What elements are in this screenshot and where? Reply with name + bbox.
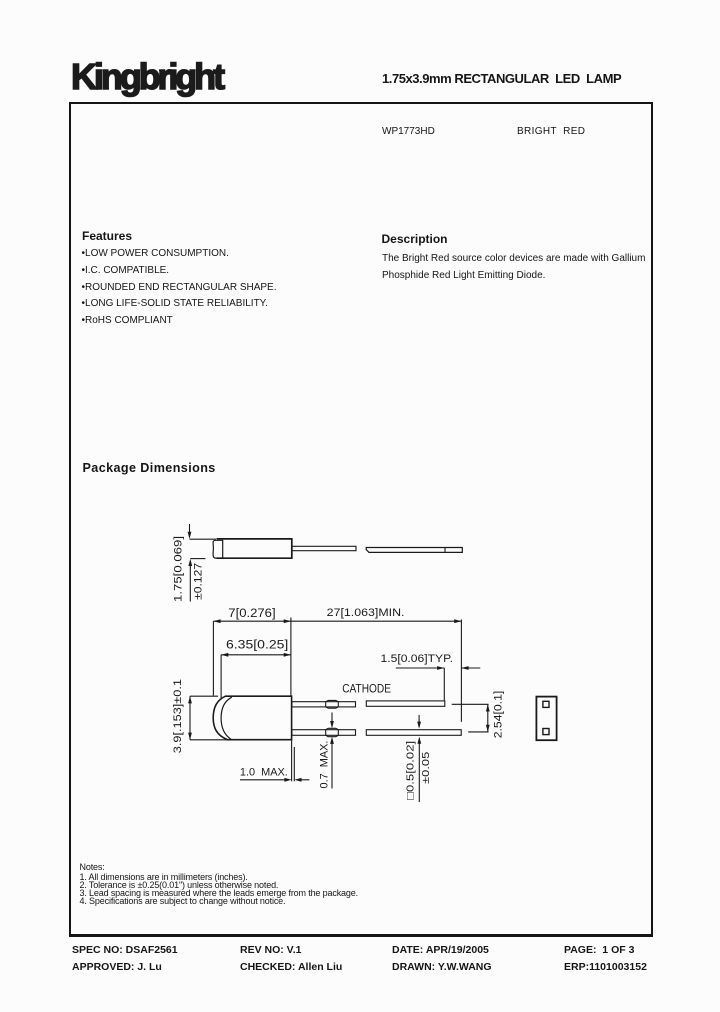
svg-text:7[0.276]: 7[0.276] bbox=[228, 608, 275, 620]
svg-text:0.7 MAX.: 0.7 MAX. bbox=[319, 741, 331, 789]
svg-text:CATHODE: CATHODE bbox=[342, 684, 391, 696]
svg-text:6.35[0.25]: 6.35[0.25] bbox=[226, 640, 288, 652]
svg-text:1.5[0.06]TYP.: 1.5[0.06]TYP. bbox=[381, 653, 454, 665]
svg-text:27[1.063]MIN.: 27[1.063]MIN. bbox=[327, 607, 405, 619]
svg-text:2.54[0.1]: 2.54[0.1] bbox=[493, 691, 505, 739]
svg-text:±0.127: ±0.127 bbox=[193, 563, 205, 600]
svg-text:3.9[.153]±0.1: 3.9[.153]±0.1 bbox=[172, 679, 184, 753]
svg-text:□0.5[0.02]: □0.5[0.02] bbox=[405, 741, 417, 800]
svg-text:±0.05: ±0.05 bbox=[420, 752, 432, 784]
svg-text:1.75[0.069]: 1.75[0.069] bbox=[173, 536, 185, 602]
svg-text:1.0 MAX.: 1.0 MAX. bbox=[240, 767, 288, 779]
